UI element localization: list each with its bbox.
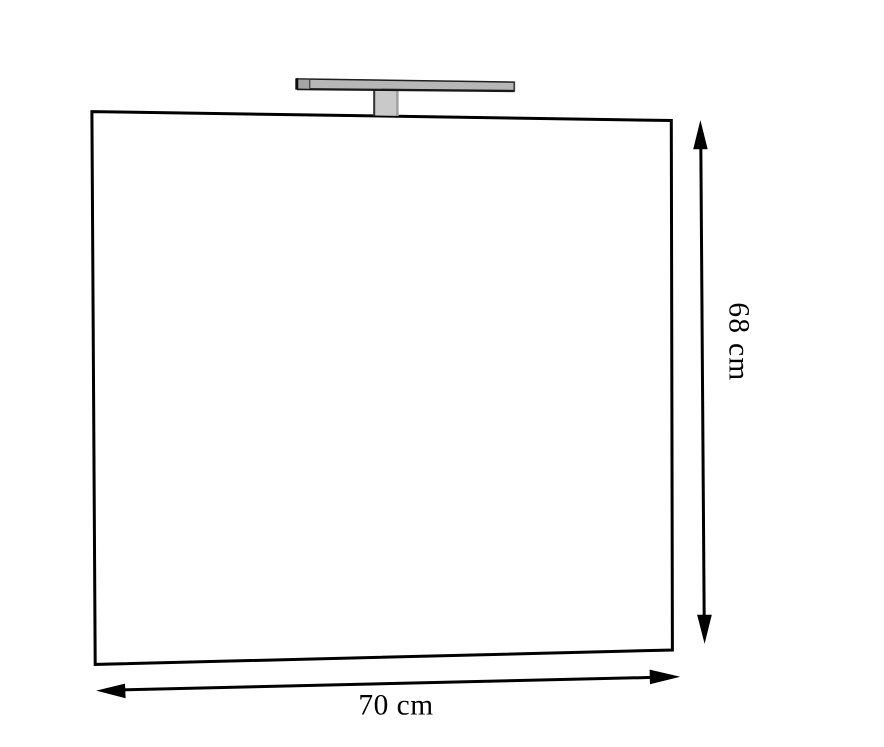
- svg-text:70 cm: 70 cm: [358, 690, 433, 722]
- svg-text:68 cm: 68 cm: [723, 302, 755, 381]
